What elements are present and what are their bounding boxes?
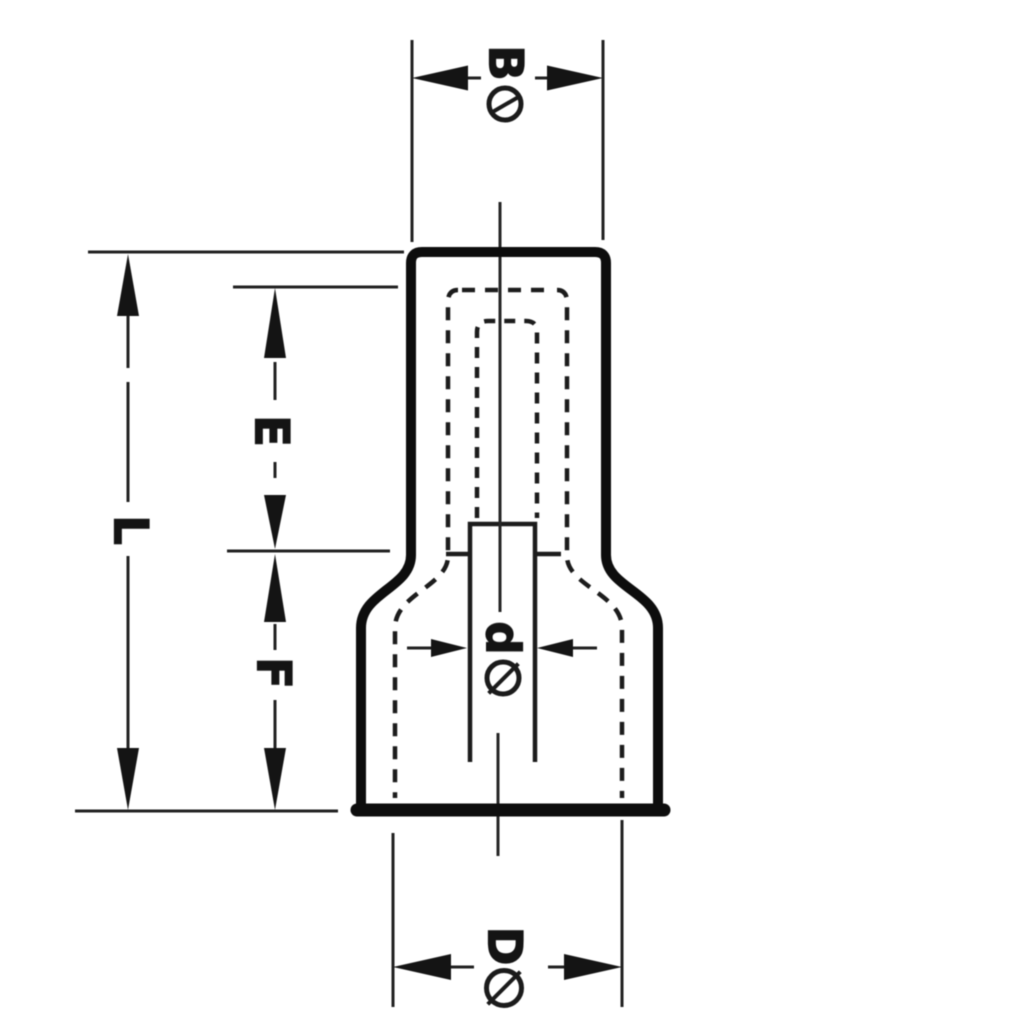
diameter-icon-d: [485, 660, 522, 697]
body-outline: [361, 252, 658, 806]
dim-label-L: L: [107, 515, 154, 545]
diameter-icon-D: [484, 968, 524, 1008]
arrowhead-up: [264, 288, 286, 358]
dim-label-B: B: [482, 45, 529, 81]
technical-drawing: B L E F d D: [0, 0, 1024, 1024]
arrowhead-right: [431, 639, 467, 657]
arrowhead-down: [117, 748, 139, 810]
hidden-cavity-lines: [395, 290, 622, 798]
diameter-slash: [491, 95, 519, 113]
arrowhead-down: [264, 748, 286, 810]
dim-label-F: F: [250, 657, 297, 689]
arrowhead-left: [412, 66, 468, 91]
hidden-bore-right: [557, 290, 622, 798]
arrowhead-up: [264, 554, 286, 622]
diameter-slash: [486, 970, 521, 1005]
arrowhead-right: [564, 954, 622, 980]
diameter-slash: [487, 662, 520, 695]
arrowhead-right: [547, 66, 603, 91]
diameter-icon-B: [487, 86, 524, 123]
arrowhead-left: [537, 639, 573, 657]
hidden-wire-bore: [477, 321, 537, 518]
arrowhead-up: [117, 254, 139, 316]
arrowhead-left: [393, 954, 451, 980]
dim-label-E: E: [248, 415, 295, 447]
arrowhead-down: [264, 495, 286, 549]
drawing-canvas: [0, 0, 1024, 1024]
dim-label-D: D: [481, 926, 528, 965]
centerline: [498, 202, 500, 856]
connector-body: [357, 252, 664, 810]
dim-label-d: d: [479, 621, 526, 655]
hidden-bore-left: [395, 290, 458, 798]
